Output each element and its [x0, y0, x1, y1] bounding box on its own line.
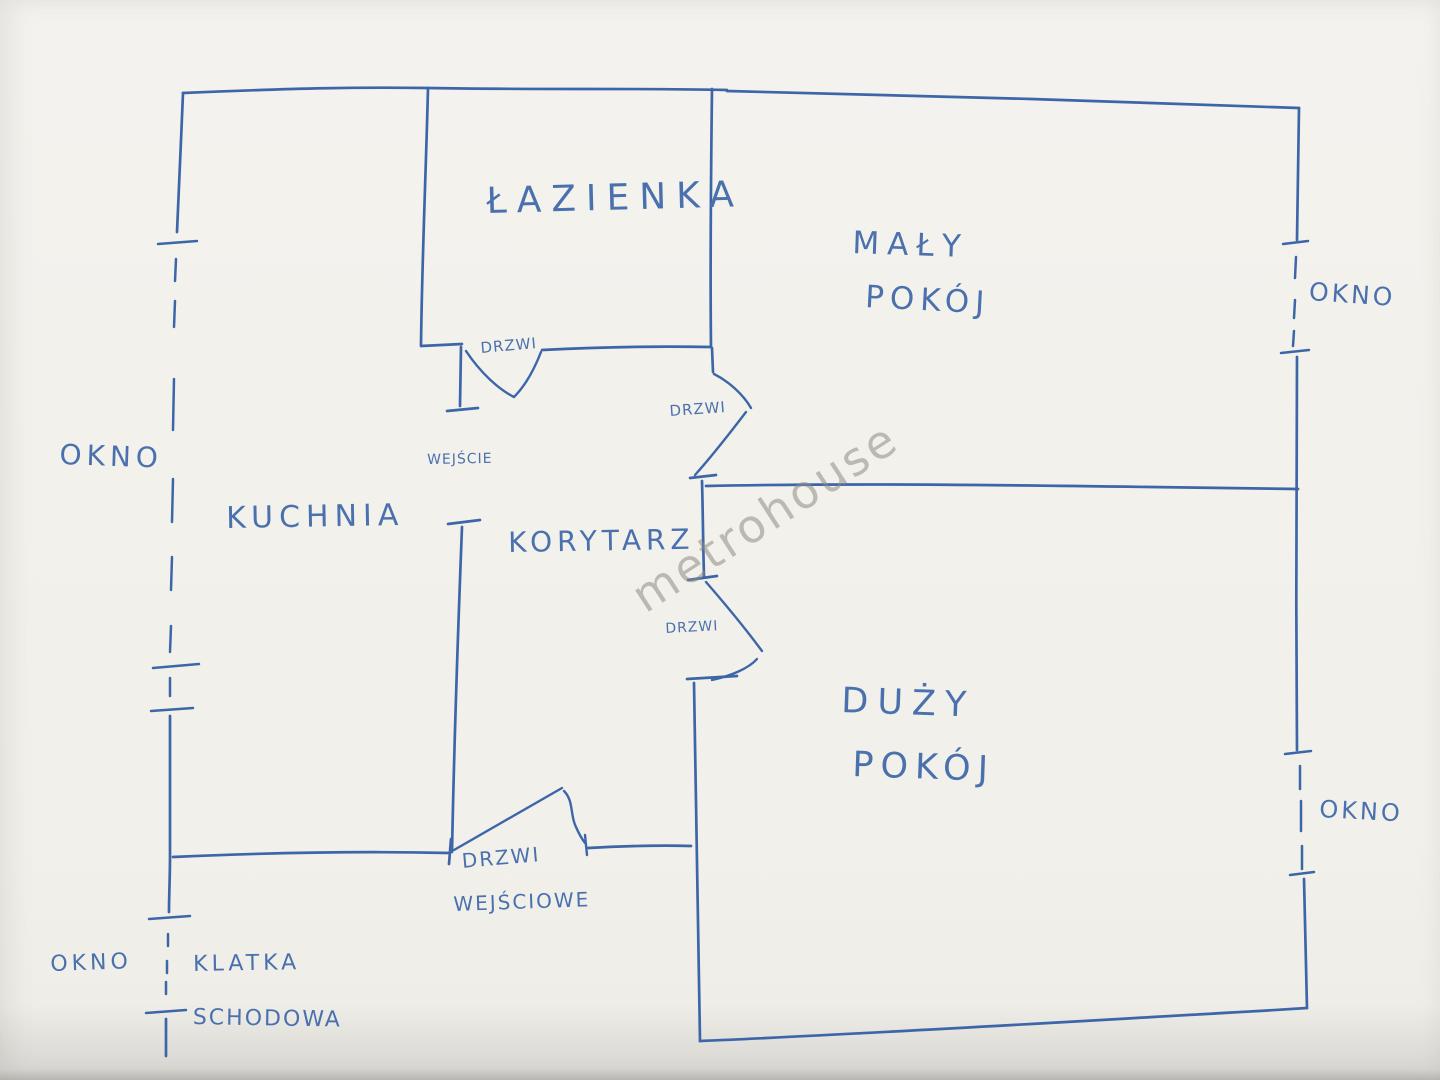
large-room-window-label: OKNO [1319, 797, 1404, 825]
small-room-door-label: DRZWI [669, 400, 726, 419]
small-room-label-line2: POKÓJ [864, 282, 991, 320]
staircase-window-label: OKNO [50, 951, 132, 976]
small-room-window-dashes [1293, 257, 1296, 346]
bottom-wall [700, 1008, 1307, 1041]
small-room-door-leaf [695, 412, 746, 475]
front-door-label-line2: WEJŚCIOWE [453, 889, 591, 914]
bathroom-label: ŁAZIENKA [486, 177, 744, 220]
front-door-label-line1: DRZWI [461, 844, 541, 871]
staircase-label-line2: SCHODOWA [193, 1007, 342, 1032]
hall-bottom-wall [588, 846, 691, 848]
large-room-window-dashes [1300, 766, 1302, 869]
right-wall-mid [1296, 357, 1297, 750]
bathroom-right-wall [711, 89, 712, 347]
small-room-label-line1: MAŁY [852, 228, 969, 263]
large-room-door-label: DRZWI [665, 619, 719, 636]
small-room-door-stub [712, 348, 713, 372]
kitchen-corridor-wall [448, 520, 480, 852]
floorplan-photo: ŁAZIENKA MAŁY POKÓJ KUCHNIA KORYTARZ DUŻ… [0, 0, 1440, 1080]
kitchen-passage-label: WEJŚCIE [427, 452, 493, 467]
passage-stub-wall [447, 347, 478, 411]
large-room-door-leaf [706, 582, 762, 651]
kitchen-window-dashes [170, 259, 176, 696]
kitchen-label: KUCHNIA [226, 501, 405, 534]
kitchen-window-label: OKNO [59, 441, 163, 473]
staircase-label-line1: KLATKA [193, 952, 300, 976]
top-wall [183, 88, 1299, 108]
bathroom-door-swing [466, 351, 541, 397]
front-door-leaf [454, 788, 562, 850]
staircase-window-dashes [166, 934, 168, 994]
left-wall-upper [177, 93, 183, 232]
front-door-swing [564, 791, 585, 843]
large-room-label-line2: POKÓJ [852, 748, 996, 788]
bathroom-bottom-wall [421, 344, 711, 350]
right-wall-lower [1304, 879, 1307, 1008]
kitchen-bottom-wall [173, 839, 451, 864]
left-wall-mid [169, 716, 170, 912]
bathroom-left-wall [421, 88, 428, 345]
large-room-label-line1: DUŻY [841, 684, 976, 724]
small-room-window-label: OKNO [1308, 279, 1396, 310]
right-wall-upper [1297, 108, 1299, 240]
front-door-tick [585, 835, 587, 855]
large-room-left-wall [687, 676, 737, 1041]
